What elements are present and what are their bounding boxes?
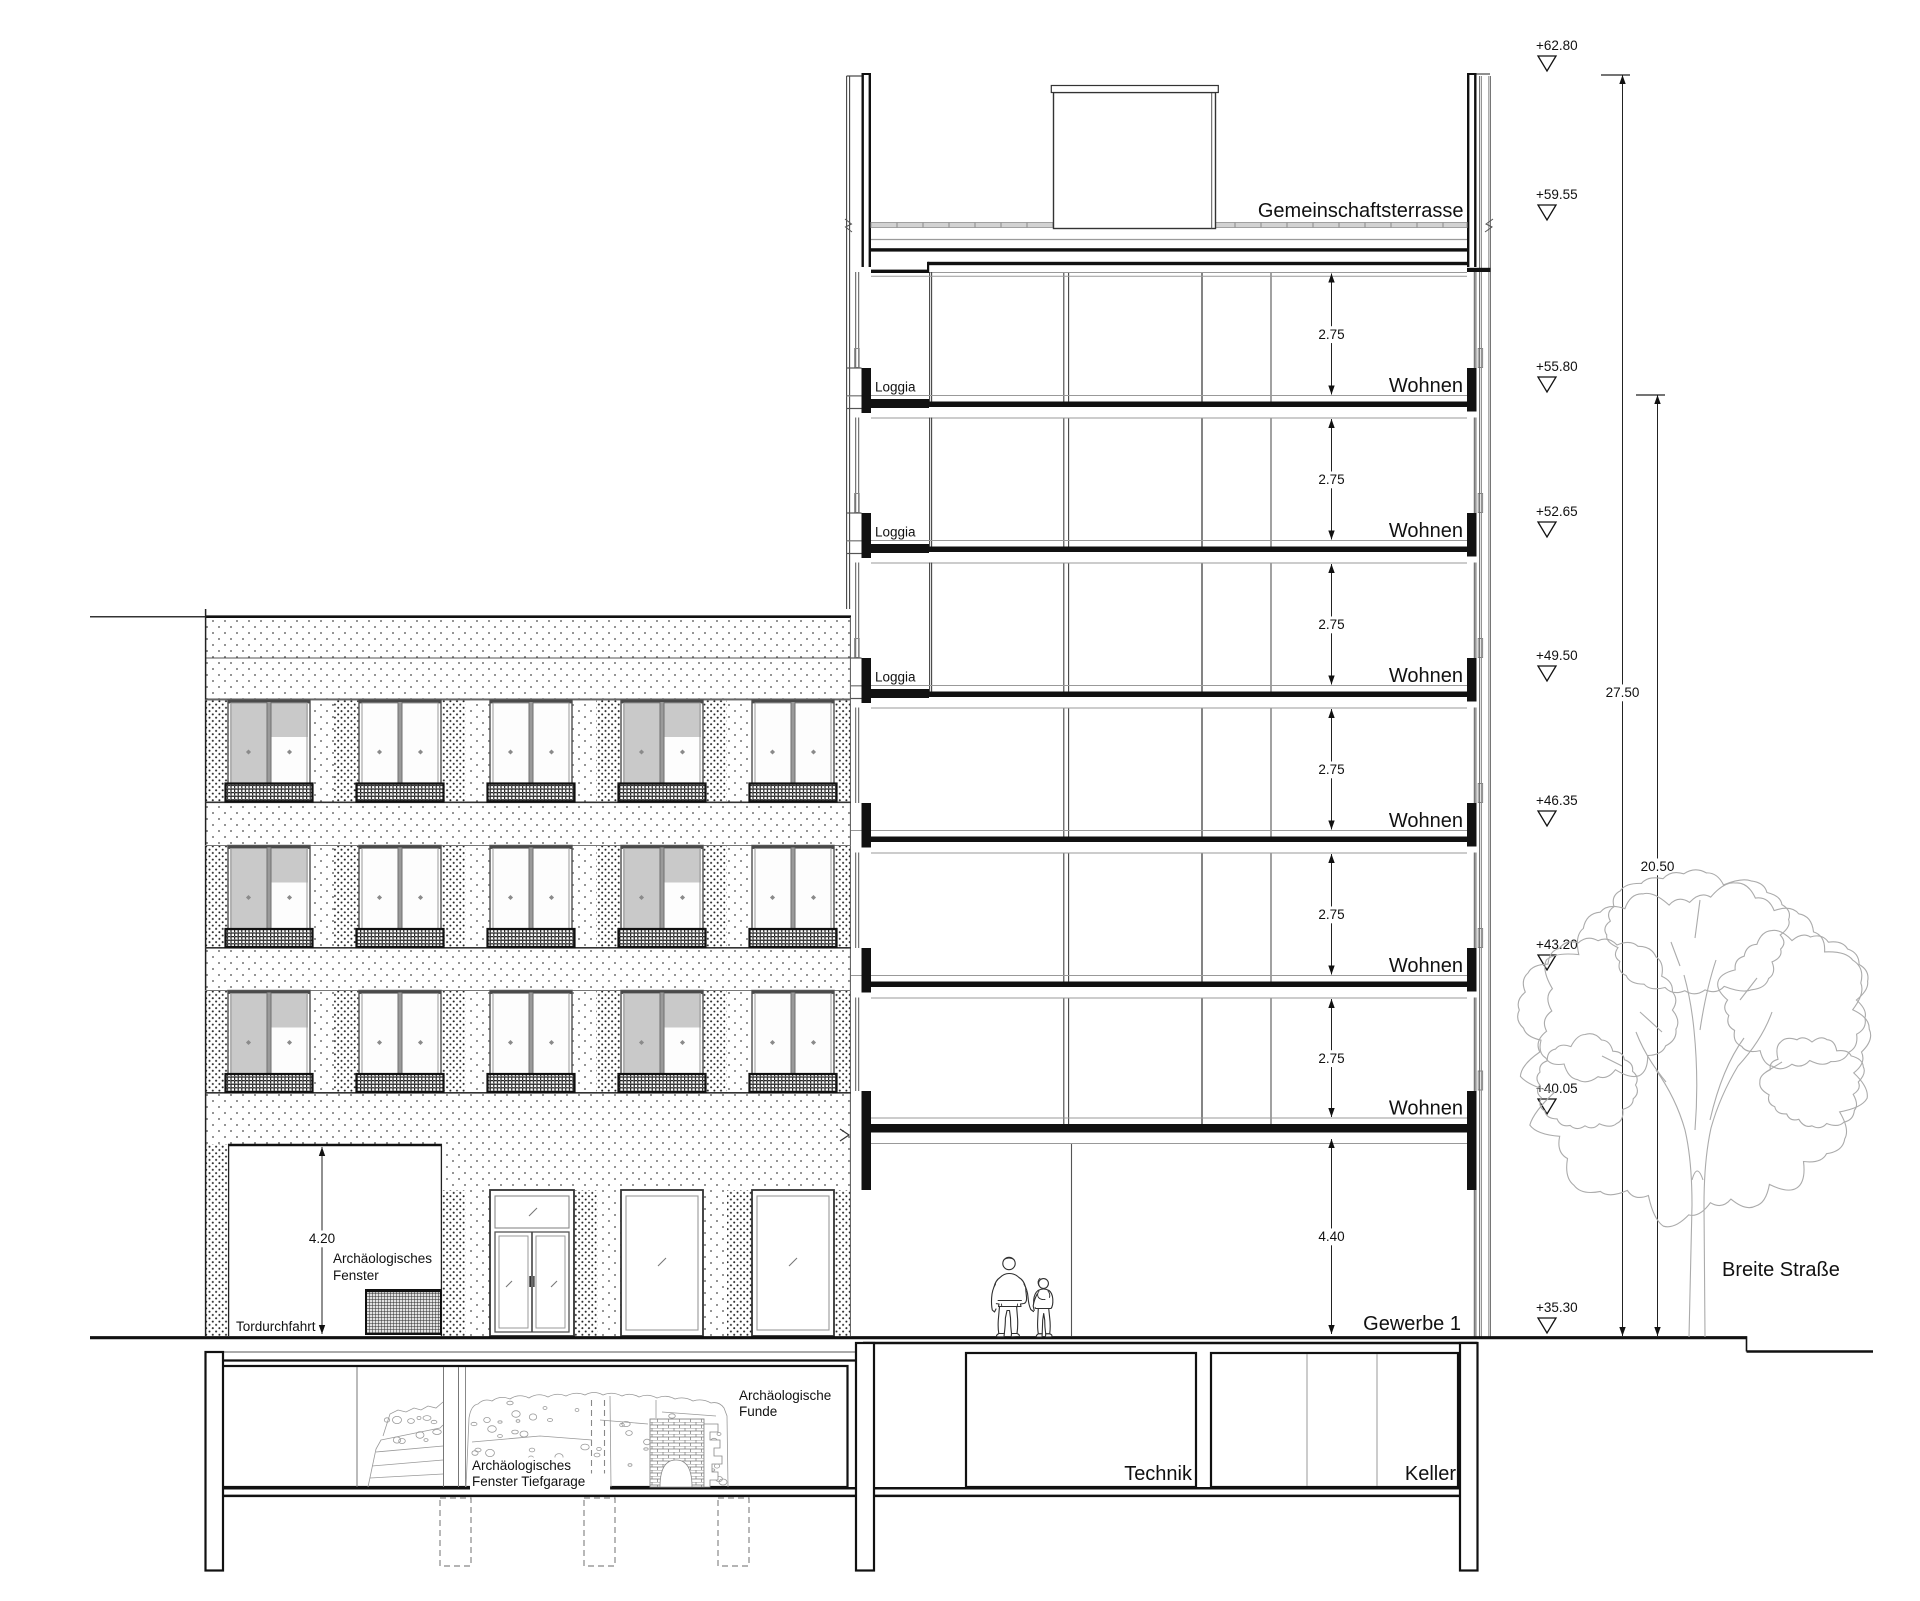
svg-text:2.75: 2.75 [1318, 617, 1344, 632]
svg-text:Wohnen: Wohnen [1389, 520, 1463, 542]
svg-text:2.75: 2.75 [1318, 327, 1344, 342]
svg-text:Loggia: Loggia [875, 525, 916, 540]
svg-text:2.75: 2.75 [1318, 762, 1344, 777]
svg-text:Wohnen: Wohnen [1389, 810, 1463, 832]
svg-text:Gemeinschaftsterrasse: Gemeinschaftsterrasse [1258, 200, 1464, 222]
svg-text:Loggia: Loggia [875, 670, 916, 685]
svg-text:2.75: 2.75 [1318, 907, 1344, 922]
svg-text:Loggia: Loggia [875, 380, 916, 395]
svg-text:+55.80: +55.80 [1536, 359, 1578, 374]
svg-text:Fenster: Fenster [333, 1268, 379, 1283]
svg-text:Archäologisches: Archäologisches [333, 1251, 432, 1266]
svg-text:Archäologische: Archäologische [739, 1388, 831, 1403]
svg-text:Wohnen: Wohnen [1389, 375, 1463, 397]
svg-text:+49.50: +49.50 [1536, 648, 1578, 663]
svg-text:2.75: 2.75 [1318, 472, 1344, 487]
svg-text:Breite Straße: Breite Straße [1722, 1259, 1840, 1281]
svg-text:+46.35: +46.35 [1536, 793, 1578, 808]
svg-text:Wohnen: Wohnen [1389, 665, 1463, 687]
svg-text:Funde: Funde [739, 1404, 777, 1419]
svg-text:Wohnen: Wohnen [1389, 1098, 1463, 1120]
svg-text:20.50: 20.50 [1641, 859, 1675, 874]
svg-text:4.20: 4.20 [309, 1231, 335, 1246]
svg-text:Archäologisches: Archäologisches [472, 1458, 571, 1473]
svg-text:Gewerbe 1: Gewerbe 1 [1363, 1313, 1461, 1335]
svg-text:+59.55: +59.55 [1536, 187, 1578, 202]
svg-text:+52.65: +52.65 [1536, 504, 1578, 519]
svg-text:+62.80: +62.80 [1536, 38, 1578, 53]
svg-text:Keller: Keller [1405, 1463, 1456, 1485]
svg-text:Technik: Technik [1124, 1463, 1193, 1485]
svg-text:2.75: 2.75 [1318, 1051, 1344, 1066]
svg-text:Tordurchfahrt: Tordurchfahrt [236, 1319, 316, 1334]
svg-text:Wohnen: Wohnen [1389, 955, 1463, 977]
svg-text:Fenster Tiefgarage: Fenster Tiefgarage [472, 1474, 585, 1489]
svg-text:+35.30: +35.30 [1536, 1300, 1578, 1315]
svg-text:27.50: 27.50 [1606, 685, 1640, 700]
svg-text:4.40: 4.40 [1318, 1229, 1344, 1244]
